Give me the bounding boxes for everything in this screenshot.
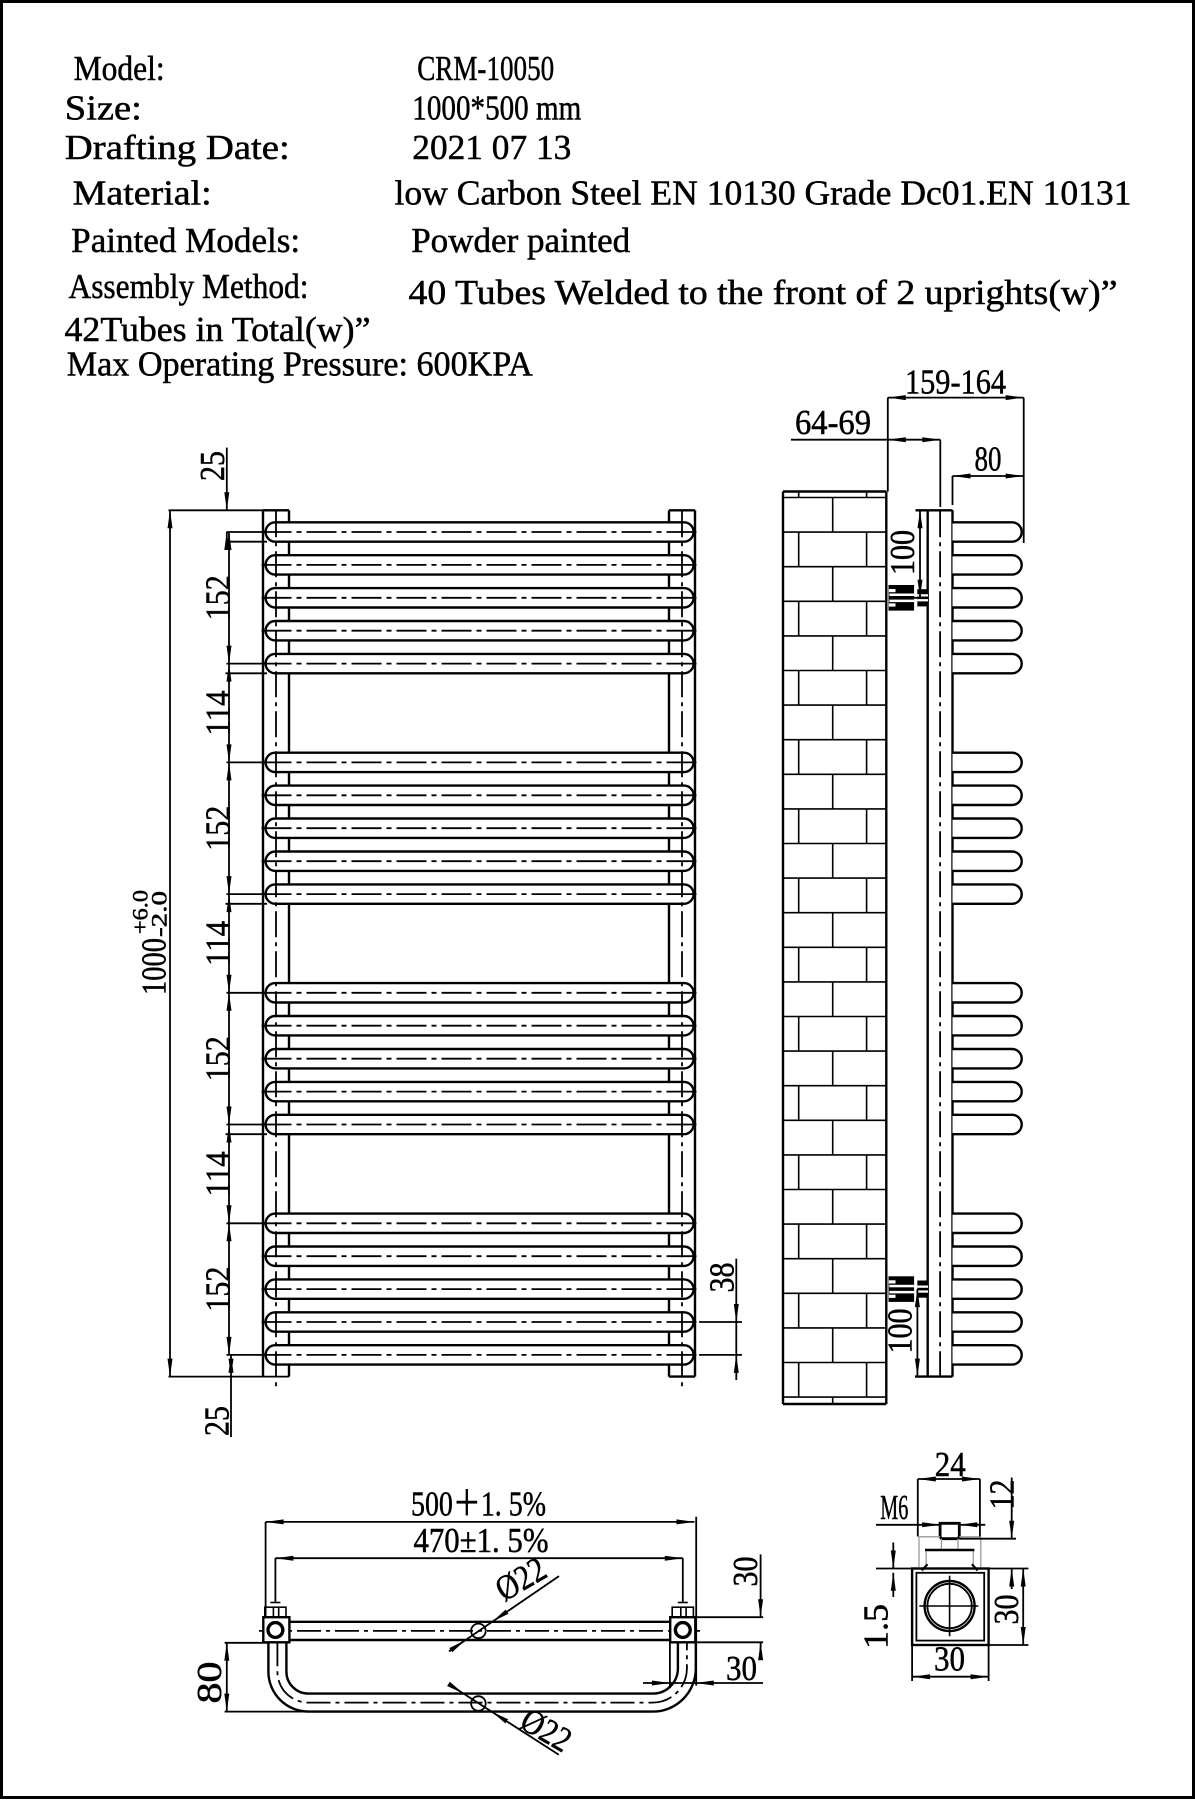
svg-text:25: 25 <box>193 451 232 481</box>
svg-text:30: 30 <box>934 1640 965 1679</box>
svg-text:Model:: Model: <box>74 49 165 88</box>
svg-text:CRM-10050: CRM-10050 <box>417 49 554 88</box>
svg-text:Painted Models:: Painted Models: <box>71 221 300 260</box>
svg-text:114: 114 <box>199 921 238 966</box>
svg-text:Drafting Date:: Drafting Date: <box>65 128 290 167</box>
svg-text:Assembly Method:: Assembly Method: <box>69 267 309 306</box>
svg-text:Max Operating Pressure: 600KPA: Max Operating Pressure: 600KPA <box>67 345 534 384</box>
svg-text:80: 80 <box>190 1662 229 1704</box>
svg-text:2021 07 13: 2021 07 13 <box>412 128 571 167</box>
svg-text:152: 152 <box>199 1036 238 1081</box>
svg-text:25: 25 <box>198 1406 237 1436</box>
svg-text:24: 24 <box>935 1445 966 1484</box>
svg-text:100: 100 <box>881 1309 920 1354</box>
svg-text:Powder painted: Powder painted <box>411 221 630 260</box>
svg-text:1000: 1000 <box>135 938 174 995</box>
svg-text:38: 38 <box>703 1263 742 1293</box>
svg-text:+6.0: +6.0 <box>128 890 153 934</box>
svg-text:152: 152 <box>199 1267 238 1312</box>
svg-text:Material:: Material: <box>73 173 212 212</box>
svg-text:159-164: 159-164 <box>905 363 1006 402</box>
svg-text:500＋1. 5%: 500＋1. 5% <box>411 1485 546 1524</box>
svg-text:1.5: 1.5 <box>857 1604 896 1649</box>
svg-text:30: 30 <box>987 1595 1026 1625</box>
svg-text:low Carbon Steel EN 10130 Gra: low Carbon Steel EN 10130 Grade Dc01.EN … <box>395 173 1132 212</box>
svg-text:Size:: Size: <box>65 88 142 127</box>
svg-text:1000*500 mm: 1000*500 mm <box>412 88 581 127</box>
svg-text:40 Tubes Welded to the front o: 40 Tubes Welded to the front of 2 uprigh… <box>409 273 1118 312</box>
svg-text:152: 152 <box>199 806 238 851</box>
svg-text:Ø22: Ø22 <box>514 1700 579 1760</box>
svg-text:80: 80 <box>975 440 1002 479</box>
svg-text:114: 114 <box>199 1151 238 1196</box>
svg-text:152: 152 <box>199 575 238 620</box>
svg-text:100: 100 <box>883 530 922 575</box>
svg-text:114: 114 <box>199 691 238 736</box>
svg-text:64-69: 64-69 <box>795 403 871 442</box>
svg-text:30: 30 <box>726 1557 765 1587</box>
svg-text:42Tubes in Total(w)”: 42Tubes in Total(w)” <box>65 310 371 349</box>
svg-text:12: 12 <box>983 1480 1022 1510</box>
svg-text:M6: M6 <box>880 1488 908 1527</box>
svg-text:30: 30 <box>726 1649 757 1688</box>
